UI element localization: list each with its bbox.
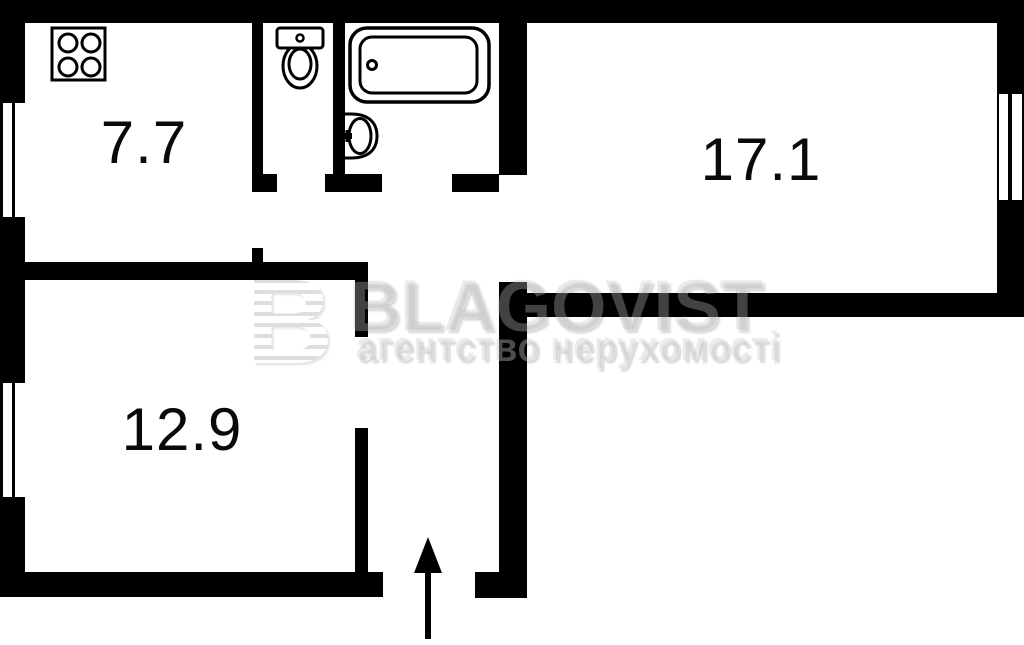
wall-kitchen-bottom (25, 262, 368, 280)
wall-living-bottom (499, 293, 997, 317)
window-frame-line (12, 103, 15, 217)
wall-hall-right (499, 282, 527, 572)
window-frame-line (0, 103, 3, 217)
wall-hall-left-upper (355, 262, 368, 337)
bathtub-icon (348, 25, 491, 105)
wall-bottom (0, 572, 383, 597)
window-kitchen (0, 103, 25, 217)
wall-top (0, 0, 1024, 23)
window-frame-line (12, 383, 15, 497)
wall-bathroom-living (499, 23, 527, 175)
wall-left-upper (0, 23, 25, 103)
window-frame-line (997, 94, 999, 200)
watermark-tagline: агентство нерухомості (357, 327, 781, 368)
window-frame-line (0, 383, 3, 497)
wall-right-lower (997, 200, 1024, 317)
wall-hall-left-lower (355, 428, 368, 572)
floor-plan: 7.7 17.1 12.9 B BLAGOVIST агентство неру… (0, 0, 1024, 645)
door-jamb-toilet-left (252, 174, 277, 192)
toilet-icon (274, 25, 326, 91)
room-label-living-room: 17.1 (701, 130, 822, 190)
window-living-room (997, 94, 1024, 200)
wall-right-upper (997, 23, 1024, 94)
wall-left-middle (0, 217, 25, 383)
sink-icon (343, 110, 381, 162)
window-bedroom (0, 383, 25, 497)
stove-icon (50, 26, 107, 82)
door-jamb-between-doors (325, 174, 382, 192)
entrance-arrow-icon (410, 535, 446, 641)
window-frame-line (1008, 94, 1012, 200)
door-jamb-bathroom-right (452, 174, 499, 192)
room-label-kitchen: 7.7 (101, 113, 187, 173)
door-jamb-entrance-right (475, 572, 527, 598)
wall-kitchen-right-upper (252, 23, 263, 175)
room-label-bedroom: 12.9 (122, 400, 243, 460)
